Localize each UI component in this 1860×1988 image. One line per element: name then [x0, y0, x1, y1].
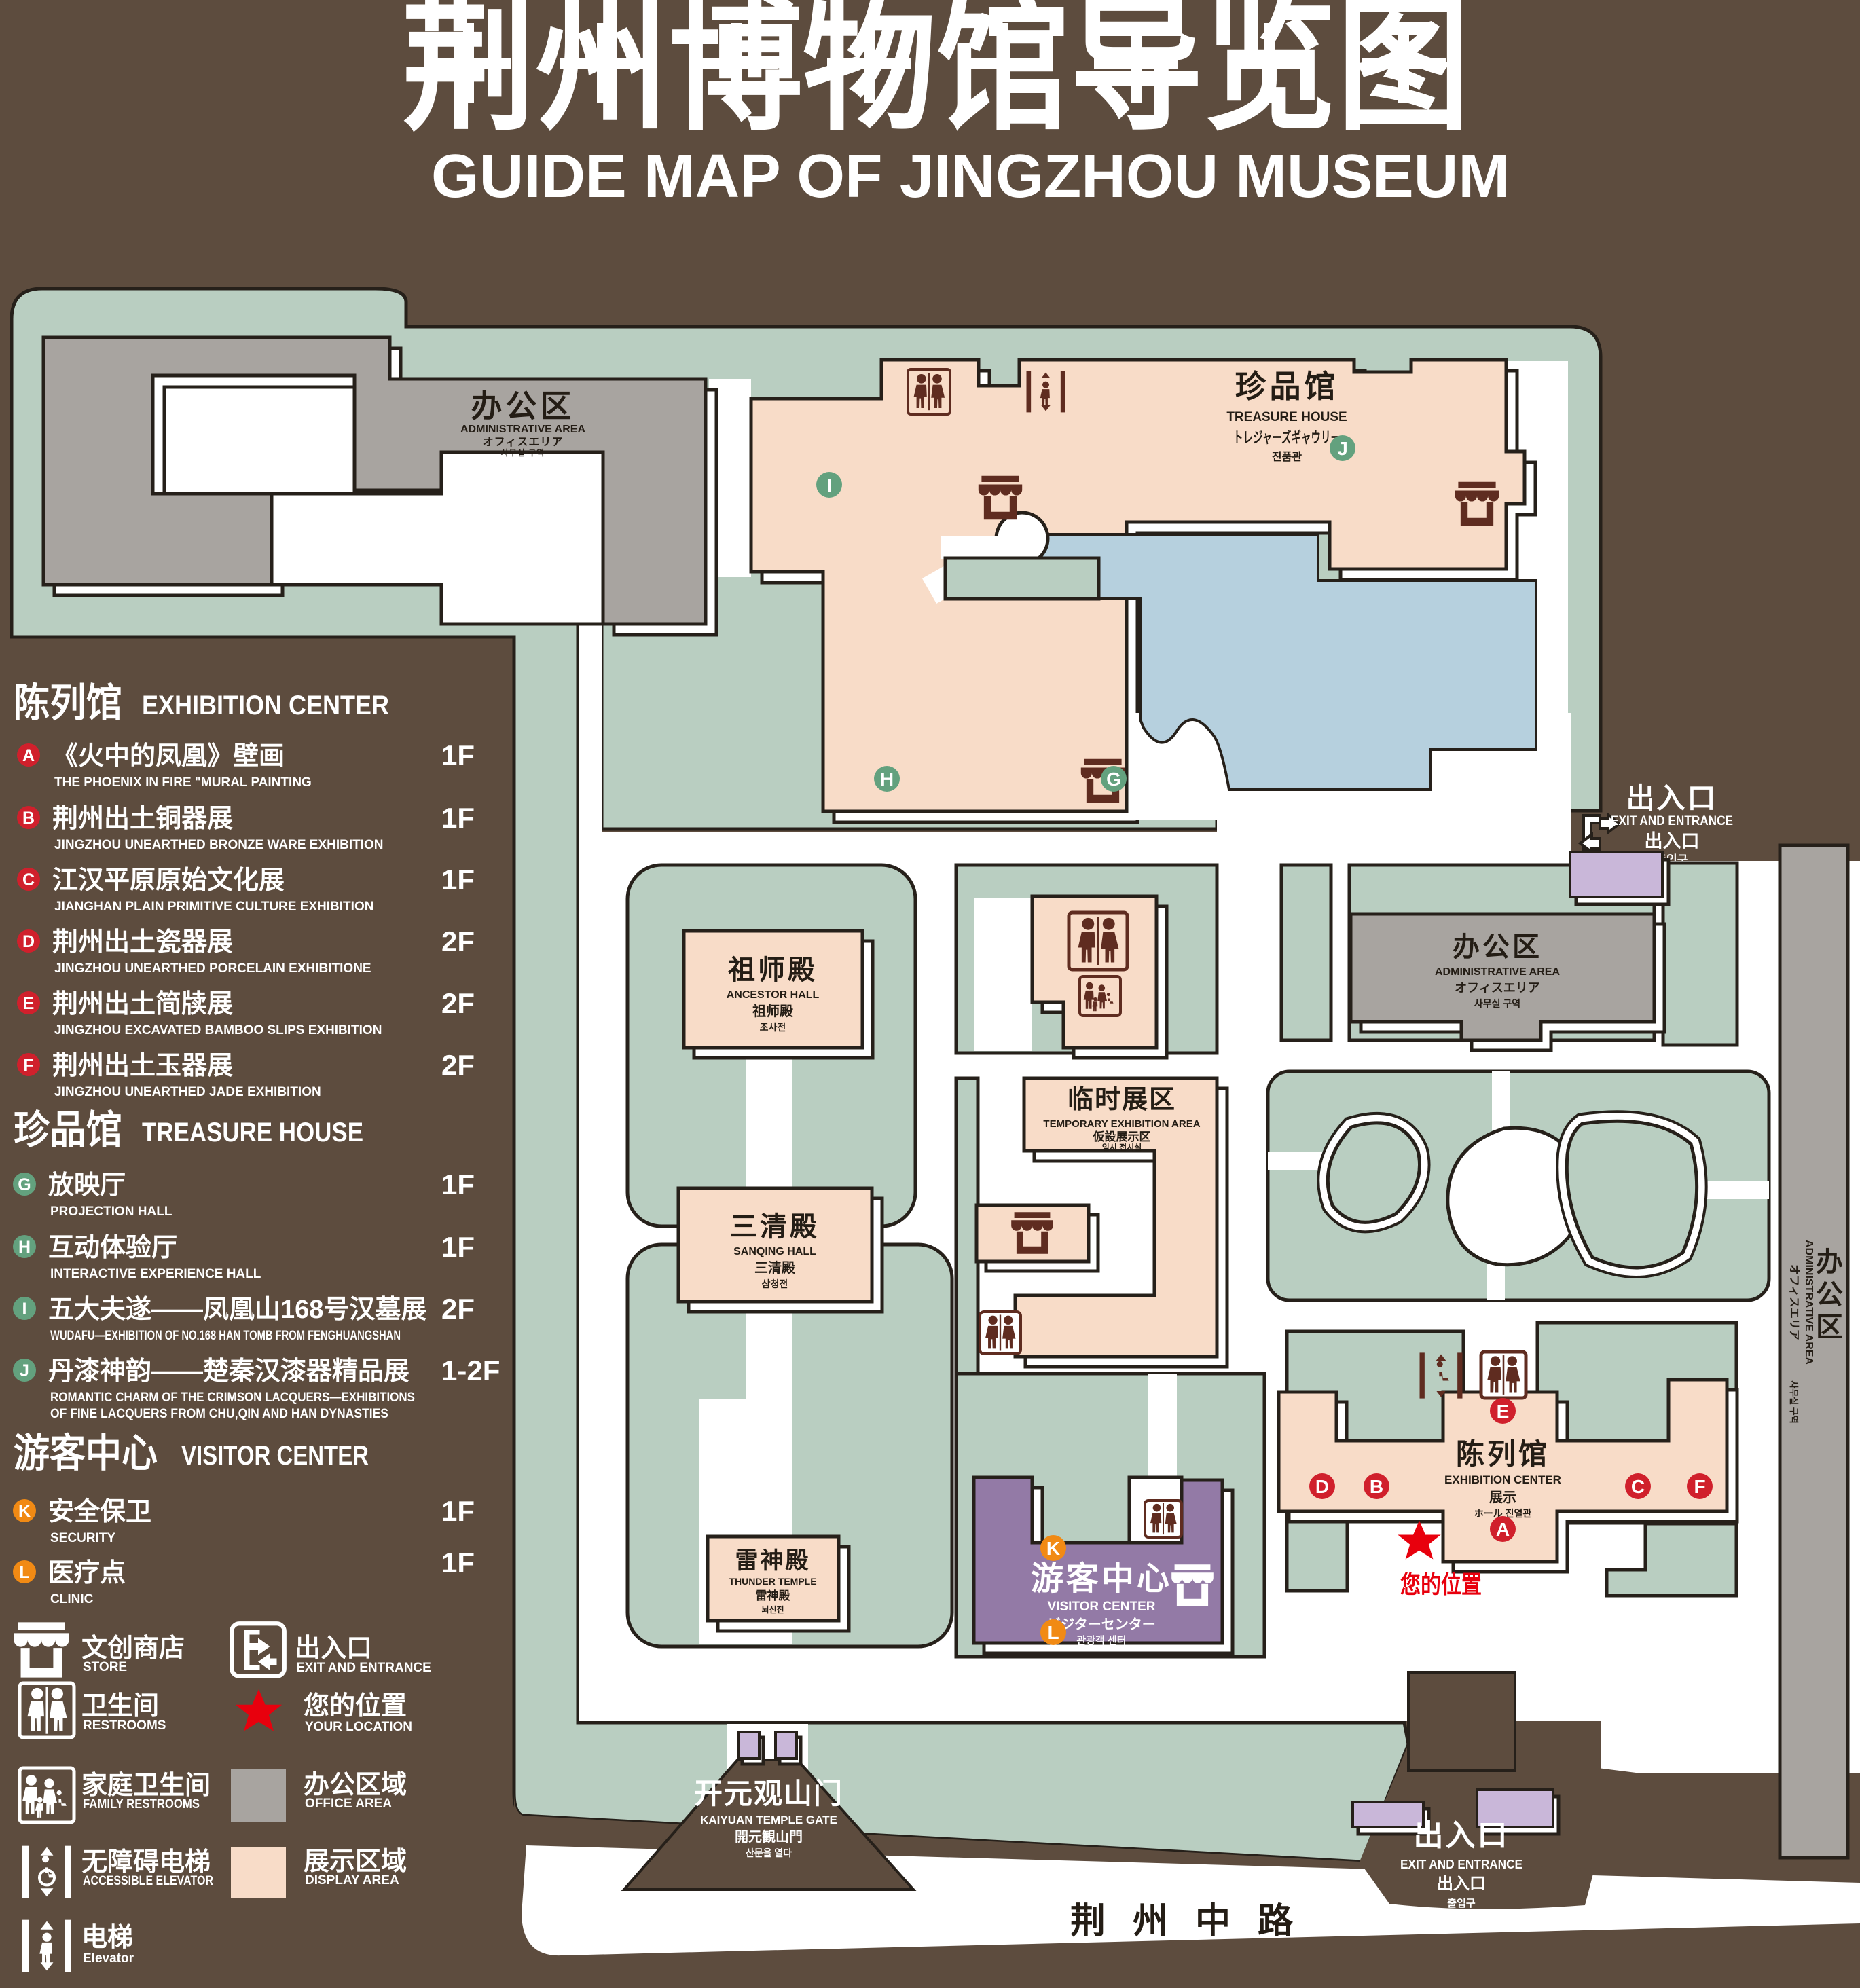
svg-text:互动体验厅: 互动体验厅 — [48, 1234, 177, 1262]
svg-text:OF FINE LACQUERS FROM CHU,QIN: OF FINE LACQUERS FROM CHU,QIN AND HAN DY… — [50, 1407, 388, 1421]
svg-text:FAMILY RESTROOMS: FAMILY RESTROOMS — [83, 1797, 200, 1811]
svg-text:区: 区 — [1816, 1312, 1843, 1342]
svg-text:EXHIBITION CENTER: EXHIBITION CENTER — [142, 691, 389, 720]
svg-text:JINGZHOU EXCAVATED BAMBOO SLIP: JINGZHOU EXCAVATED BAMBOO SLIPS EXHIBITI… — [54, 1023, 382, 1037]
svg-text:1F: 1F — [441, 1168, 475, 1200]
svg-text:仮設展示区: 仮設展示区 — [1093, 1130, 1151, 1143]
svg-text:珍品馆: 珍品馆 — [14, 1108, 122, 1152]
svg-text:出入口: 出入口 — [1437, 1875, 1486, 1893]
svg-text:展示区域: 展示区域 — [304, 1847, 407, 1876]
svg-text:1F: 1F — [441, 1547, 475, 1579]
svg-text:珍品馆: 珍品馆 — [1235, 369, 1339, 404]
svg-text:관광객 센터: 관광객 센터 — [1076, 1634, 1126, 1646]
svg-text:祖师殿: 祖师殿 — [728, 955, 818, 985]
svg-text:사무실 구역: 사무실 구역 — [1789, 1380, 1799, 1423]
svg-text:DISPLAY AREA: DISPLAY AREA — [305, 1873, 399, 1888]
svg-text:2F: 2F — [441, 925, 475, 957]
svg-text:五大夫遂——凤凰山168号汉墓展: 五大夫遂——凤凰山168号汉墓展 — [48, 1295, 426, 1324]
svg-text:GUIDE MAP OF JINGZHOU MUSEUM: GUIDE MAP OF JINGZHOU MUSEUM — [431, 143, 1510, 210]
svg-text:RESTROOMS: RESTROOMS — [83, 1718, 166, 1733]
svg-text:삼청전: 삼청전 — [762, 1278, 788, 1289]
svg-text:H: H — [880, 769, 894, 790]
svg-text:VISITOR CENTER: VISITOR CENTER — [1047, 1600, 1155, 1614]
svg-text:INTERACTIVE EXPERIENCE HALL: INTERACTIVE EXPERIENCE HALL — [50, 1267, 261, 1281]
svg-text:B: B — [22, 809, 35, 828]
svg-text:JIANGHAN PLAIN PRIMITIVE CULTU: JIANGHAN PLAIN PRIMITIVE CULTURE EXHIBIT… — [54, 900, 373, 914]
svg-text:办: 办 — [1816, 1247, 1843, 1277]
svg-text:出入口: 出入口 — [295, 1634, 372, 1663]
svg-text:E: E — [1497, 1401, 1510, 1422]
svg-text:1F: 1F — [441, 739, 475, 771]
svg-text:出入口: 出入口 — [1645, 831, 1700, 851]
svg-text:出入口: 出入口 — [1414, 1819, 1510, 1852]
svg-text:游客中心: 游客中心 — [1031, 1561, 1172, 1597]
svg-text:1-2F: 1-2F — [441, 1355, 500, 1386]
svg-text:사무실 구역: 사무실 구역 — [1474, 998, 1520, 1009]
svg-text:出入口: 出入口 — [1626, 782, 1717, 814]
svg-text:トレジャーズギャウリー: トレジャーズギャウリー — [1233, 429, 1341, 446]
svg-text:J: J — [1337, 438, 1348, 459]
svg-text:オフィスエリア: オフィスエリア — [483, 436, 564, 448]
svg-text:C: C — [1631, 1476, 1645, 1497]
svg-text:G: G — [18, 1175, 31, 1194]
svg-text:2F: 2F — [441, 987, 475, 1019]
svg-text:陈列馆: 陈列馆 — [1456, 1438, 1550, 1470]
svg-text:JINGZHOU UNEARTHED PORCELAIN E: JINGZHOU UNEARTHED PORCELAIN EXHIBITIONE — [54, 961, 371, 976]
svg-text:三清殿: 三清殿 — [754, 1259, 796, 1276]
svg-text:公: 公 — [1816, 1280, 1843, 1310]
svg-text:荆州出土铜器展: 荆州出土铜器展 — [52, 805, 233, 833]
svg-text:办公区域: 办公区域 — [304, 1771, 407, 1799]
svg-text:출입구: 출입구 — [1447, 1898, 1476, 1909]
svg-text:G: G — [1106, 769, 1121, 790]
svg-text:OFFICE AREA: OFFICE AREA — [305, 1797, 392, 1811]
svg-text:文创商店: 文创商店 — [81, 1634, 185, 1663]
svg-text:THUNDER TEMPLE: THUNDER TEMPLE — [729, 1576, 816, 1587]
svg-text:YOUR LOCATION: YOUR LOCATION — [305, 1720, 412, 1734]
svg-text:EXHIBITION CENTER: EXHIBITION CENTER — [1444, 1473, 1561, 1486]
svg-text:A: A — [22, 746, 35, 765]
svg-text:2F: 2F — [441, 1293, 475, 1325]
svg-text:I: I — [22, 1300, 27, 1319]
svg-text:荆州出土简牍展: 荆州出土简牍展 — [52, 990, 233, 1018]
svg-text:1F: 1F — [441, 864, 475, 896]
svg-text:安全保卫: 安全保卫 — [48, 1497, 151, 1526]
svg-text:I: I — [826, 475, 832, 496]
svg-text:ADMINISTRATIVE AREA: ADMINISTRATIVE AREA — [1435, 966, 1560, 978]
svg-text:放映厅: 放映厅 — [48, 1171, 126, 1200]
svg-text:办公区: 办公区 — [471, 388, 575, 424]
svg-text:H: H — [18, 1238, 31, 1257]
svg-text:TREASURE HOUSE: TREASURE HOUSE — [142, 1118, 363, 1147]
svg-text:開元観山門: 開元観山門 — [735, 1828, 803, 1845]
svg-text:您的位置: 您的位置 — [304, 1692, 407, 1720]
svg-text:江汉平原原始文化展: 江汉平原原始文化展 — [52, 866, 285, 895]
svg-text:2F: 2F — [441, 1049, 475, 1081]
svg-text:EXIT AND ENTRANCE: EXIT AND ENTRANCE — [1611, 814, 1733, 828]
svg-text:KAIYUAN TEMPLE GATE: KAIYUAN TEMPLE GATE — [700, 1814, 837, 1826]
svg-text:医疗点: 医疗点 — [48, 1559, 126, 1587]
svg-text:J: J — [20, 1361, 29, 1380]
svg-text:B: B — [1370, 1476, 1383, 1497]
svg-text:展示: 展示 — [1489, 1490, 1516, 1505]
svg-text:荆州中路: 荆州中路 — [1070, 1902, 1320, 1941]
svg-text:F: F — [23, 1056, 33, 1075]
svg-text:임시 전시실: 임시 전시실 — [1102, 1142, 1142, 1152]
svg-text:JINGZHOU UNEARTHED JADE EXHIBI: JINGZHOU UNEARTHED JADE EXHIBITION — [54, 1085, 321, 1099]
svg-text:Elevator: Elevator — [83, 1951, 134, 1966]
svg-text:VISITOR CENTER: VISITOR CENTER — [181, 1441, 369, 1471]
svg-text:ROMANTIC CHARM OF THE CRIMSON: ROMANTIC CHARM OF THE CRIMSON LACQUERS—E… — [50, 1391, 415, 1405]
svg-text:オフィスエリア: オフィスエリア — [1788, 1264, 1800, 1340]
svg-text:STORE: STORE — [83, 1660, 127, 1674]
svg-text:游客中心: 游客中心 — [14, 1431, 158, 1475]
svg-text:TEMPORARY EXHIBITION AREA: TEMPORARY EXHIBITION AREA — [1043, 1118, 1200, 1130]
svg-text:无障碍电梯: 无障碍电梯 — [81, 1848, 211, 1877]
svg-text:开元观山门: 开元观山门 — [694, 1778, 843, 1809]
svg-text:《火中的凤凰》壁画: 《火中的凤凰》壁画 — [52, 742, 285, 771]
svg-text:1F: 1F — [441, 1495, 475, 1527]
svg-text:E: E — [23, 994, 35, 1013]
svg-text:뇌신전: 뇌신전 — [761, 1604, 784, 1615]
svg-text:雷神殿: 雷神殿 — [735, 1548, 811, 1574]
svg-text:办公区: 办公区 — [1453, 932, 1542, 962]
svg-text:WUDAFU—EXHIBITION OF NO.168 HA: WUDAFU—EXHIBITION OF NO.168 HAN TOMB FRO… — [50, 1329, 401, 1343]
svg-text:EXIT AND ENTRANCE: EXIT AND ENTRANCE — [1400, 1858, 1522, 1871]
svg-text:家庭卫生间: 家庭卫生间 — [81, 1771, 211, 1800]
svg-text:L: L — [19, 1563, 29, 1582]
svg-text:TREASURE HOUSE: TREASURE HOUSE — [1226, 410, 1347, 424]
svg-text:L: L — [1047, 1622, 1059, 1643]
svg-text:ADMINISTRATIVE AREA: ADMINISTRATIVE AREA — [460, 424, 585, 435]
svg-text:진품관: 진품관 — [1272, 451, 1302, 463]
svg-text:丹漆神韵——楚秦汉漆器精品展: 丹漆神韵——楚秦汉漆器精品展 — [48, 1357, 409, 1386]
svg-text:荆州博物馆导览图: 荆州博物馆导览图 — [402, 0, 1470, 147]
svg-text:CLINIC: CLINIC — [50, 1592, 94, 1606]
svg-text:THE PHOENIX IN FIRE "MURAL PAI: THE PHOENIX IN FIRE "MURAL PAINTING — [54, 775, 312, 790]
svg-text:1F: 1F — [441, 802, 475, 834]
svg-text:临时展区: 临时展区 — [1068, 1086, 1176, 1114]
svg-text:D: D — [1315, 1476, 1329, 1497]
svg-text:荆州出土瓷器展: 荆州出土瓷器展 — [52, 928, 233, 957]
svg-text:K: K — [1046, 1538, 1060, 1559]
svg-text:K: K — [18, 1502, 31, 1521]
svg-text:사무실 구역: 사무실 구역 — [501, 447, 545, 458]
svg-text:PROJECTION HALL: PROJECTION HALL — [50, 1204, 172, 1219]
svg-text:EXIT AND ENTRANCE: EXIT AND ENTRANCE — [296, 1661, 431, 1675]
svg-text:三清殿: 三清殿 — [730, 1212, 820, 1242]
svg-text:电梯: 电梯 — [81, 1923, 133, 1952]
svg-text:卫生间: 卫生间 — [81, 1692, 159, 1720]
svg-text:D: D — [22, 932, 35, 951]
svg-text:A: A — [1496, 1519, 1510, 1540]
svg-text:산문을 열다: 산문을 열다 — [746, 1847, 792, 1858]
svg-text:荆州出土玉器展: 荆州出土玉器展 — [52, 1052, 233, 1080]
svg-text:ACCESSIBLE ELEVATOR: ACCESSIBLE ELEVATOR — [83, 1874, 213, 1888]
svg-text:SANQING HALL: SANQING HALL — [733, 1246, 816, 1257]
svg-text:祖师殿: 祖师殿 — [752, 1003, 794, 1019]
svg-text:陈列馆: 陈列馆 — [14, 681, 122, 725]
svg-text:1F: 1F — [441, 1231, 475, 1263]
svg-text:雷神殿: 雷神殿 — [756, 1589, 791, 1602]
svg-text:JINGZHOU UNEARTHED BRONZE WARE: JINGZHOU UNEARTHED BRONZE WARE EXHIBITIO… — [54, 838, 384, 852]
svg-text:조사전: 조사전 — [760, 1022, 786, 1033]
svg-text:ADMINISTRATIVE AREA: ADMINISTRATIVE AREA — [1803, 1240, 1815, 1365]
svg-text:C: C — [22, 870, 35, 889]
svg-text:オフィスエリア: オフィスエリア — [1455, 981, 1540, 995]
svg-text:SECURITY: SECURITY — [50, 1531, 115, 1545]
svg-text:您的位置: 您的位置 — [1400, 1570, 1482, 1598]
svg-text:F: F — [1694, 1476, 1705, 1497]
svg-text:ANCESTOR HALL: ANCESTOR HALL — [727, 989, 820, 1001]
